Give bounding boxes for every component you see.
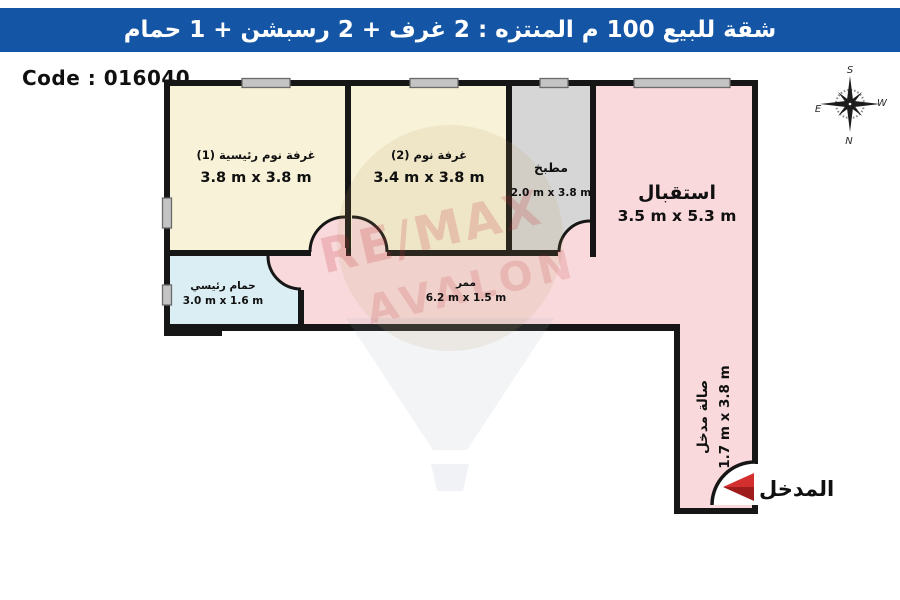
bedroom2-name: غرفة نوم (2) xyxy=(391,148,467,163)
floor-plan-canvas: RE/MAX AVALON غرفة نوم رئيسية (1) 3.8 m … xyxy=(0,0,900,600)
master-bedroom-name: غرفة نوم رئيسية (1) xyxy=(196,148,315,163)
entrance-hall-name: صالة مدخل xyxy=(695,380,711,454)
balloon-basket xyxy=(431,464,469,491)
entrance-label: المدخل xyxy=(759,477,834,501)
balloon-cone xyxy=(346,318,554,450)
kitchen-dims: 2.0 m x 3.8 m xyxy=(511,187,592,199)
reception-name: استقبال xyxy=(638,182,716,204)
bathroom-name: حمام رئيسي xyxy=(190,280,255,292)
window-bedroom2 xyxy=(410,79,458,88)
window-reception xyxy=(634,79,730,88)
bathroom-dims: 3.0 m x 1.6 m xyxy=(183,295,264,307)
reception-dims: 3.5 m x 5.3 m xyxy=(618,207,737,225)
compass-bottom-label: N xyxy=(845,136,853,147)
floor-plan-page: شقة للبيع 100 م المنتزه : 2 غرف + 2 رسبش… xyxy=(0,0,900,600)
kitchen-name: مطبخ xyxy=(534,160,568,175)
compass-rose-icon: S N E W xyxy=(815,65,888,147)
compass-right-label: W xyxy=(877,98,888,109)
window-left-bedroom xyxy=(163,198,172,228)
entrance-hall-dims: 1.7 m x 3.8 m xyxy=(717,365,733,468)
compass-top-label: S xyxy=(847,65,854,76)
compass-left-label: E xyxy=(815,104,822,115)
corridor-name: ممر xyxy=(455,277,476,289)
window-kitchen xyxy=(540,79,568,88)
corridor-dims: 6.2 m x 1.5 m xyxy=(426,292,507,304)
master-bedroom-dims: 3.8 m x 3.8 m xyxy=(200,170,311,186)
bedroom2-dims: 3.4 m x 3.8 m xyxy=(373,170,484,186)
window-left-bathroom xyxy=(163,285,172,305)
window-master-bedroom xyxy=(242,79,290,88)
